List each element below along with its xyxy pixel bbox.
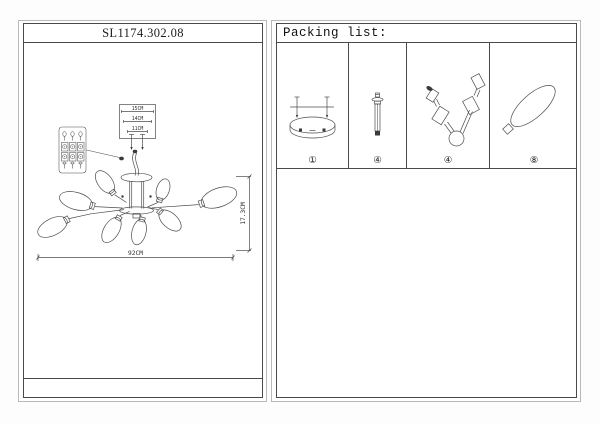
packing-list-inner: Packing list: ① — [276, 23, 577, 398]
title-block-empty-row — [24, 379, 262, 417]
dim-11cm-label: 11CM — [132, 126, 144, 132]
shade-left — [57, 188, 122, 214]
qty-badge-arm: ④ — [407, 155, 489, 166]
dim-15cm-label: 15CM — [132, 106, 144, 112]
wire-nut-icons — [63, 132, 82, 141]
wiring-detail-box — [59, 127, 124, 173]
lamp-arm-icon — [407, 43, 489, 153]
dim-17-3cm-label: 17.3CM — [240, 202, 247, 225]
packing-items-grid: ① ④ — [277, 43, 576, 169]
drawing-panel-inner: SL1174.302.08 15CM 14CM 11CM — [23, 23, 263, 398]
document-page: SL1174.302.08 15CM 14CM 11CM — [0, 0, 600, 424]
drawing-panel: SL1174.302.08 15CM 14CM 11CM — [18, 20, 267, 402]
qty-badge-screw: ④ — [349, 155, 406, 166]
power-cord — [133, 150, 139, 176]
bracket-screws — [129, 135, 145, 151]
shade-lower-right — [149, 206, 185, 235]
dim-14cm-label: 14CM — [132, 116, 144, 122]
chandelier-drawing-area: 15CM 14CM 11CM — [24, 43, 262, 379]
shade-right — [152, 183, 240, 213]
qty-badge-shade: ⑧ — [490, 155, 578, 166]
packing-item-canopy: ① — [277, 43, 349, 168]
dim-92cm-label: 92CM — [128, 250, 143, 257]
packing-item-shade: ⑧ — [490, 43, 578, 168]
terminal-block — [62, 143, 85, 162]
qty-badge-canopy: ① — [277, 155, 348, 166]
shade-center-down — [129, 214, 149, 247]
ceiling-canopy-icon — [277, 43, 348, 153]
shade-upper-right — [148, 177, 173, 207]
mounting-screw-icon — [349, 43, 406, 153]
dimension-width: 92CM — [37, 250, 235, 261]
shade-upper-left — [91, 167, 126, 202]
packing-list-panel: Packing list: ① — [271, 20, 581, 402]
mounting-bracket-detail: 15CM 14CM 11CM — [120, 105, 156, 151]
wire-connector-blob — [119, 157, 124, 161]
packing-item-arm: ④ — [407, 43, 490, 168]
chandelier-technical-drawing: 15CM 14CM 11CM — [24, 43, 263, 378]
shade-lower-left — [34, 210, 124, 242]
shade-bottom-center — [98, 212, 130, 246]
glass-shade-icon — [490, 43, 578, 153]
packing-item-screw: ④ — [349, 43, 407, 168]
canopy-and-hub — [120, 173, 154, 218]
dimension-height: 17.3CM — [236, 175, 252, 253]
packing-list-header: Packing list: — [277, 24, 576, 43]
model-number-title: SL1174.302.08 — [24, 24, 262, 43]
terminal-screws — [63, 162, 82, 169]
